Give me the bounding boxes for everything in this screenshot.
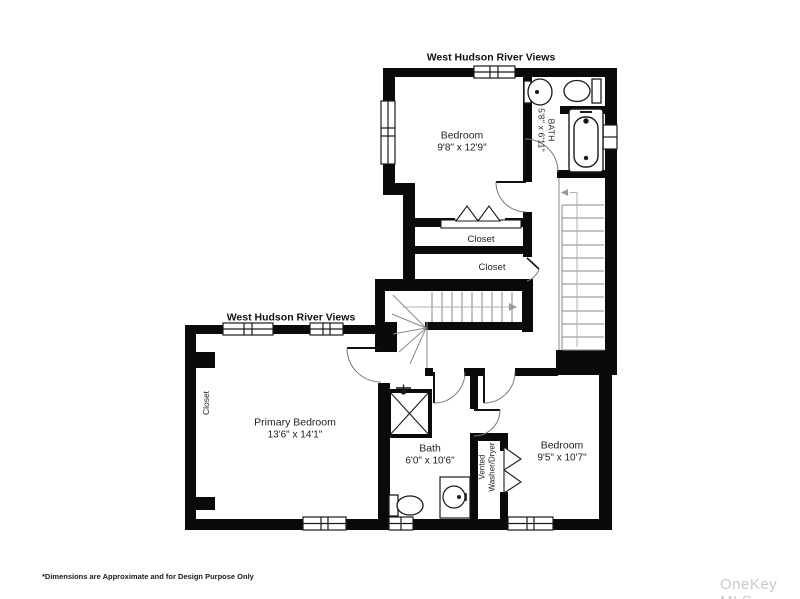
wall-segment bbox=[599, 368, 612, 519]
arrow-head-right bbox=[509, 303, 517, 311]
wall-segment bbox=[500, 492, 508, 519]
room-dimensions: 6'0" x 10'6" bbox=[405, 455, 454, 467]
door-lower-bedroom bbox=[484, 372, 515, 403]
room-label-bedroom-lower: Bedroom 9'5" x 10'7" bbox=[537, 440, 586, 465]
bathtub bbox=[569, 109, 603, 172]
bifold-closet-doors bbox=[441, 206, 521, 228]
room-label-laundry: Vented Washer/Dryer bbox=[477, 442, 497, 491]
room-dimensions: 9'8" x 12'9" bbox=[437, 142, 486, 154]
room-label-primary-closet: Closet bbox=[201, 391, 211, 415]
room-name: Bedroom bbox=[437, 130, 486, 143]
door-closet-2 bbox=[527, 258, 539, 281]
staircase-upper-run bbox=[559, 178, 604, 350]
room-label-closet-1: Closet bbox=[468, 234, 495, 246]
wall-segment bbox=[523, 212, 532, 257]
room-name: BATH bbox=[546, 108, 556, 152]
laundry-line-2: Washer/Dryer bbox=[487, 442, 497, 491]
wall-segment bbox=[196, 352, 215, 368]
vanity-sink bbox=[440, 477, 470, 518]
wall-segment bbox=[522, 279, 533, 332]
window bbox=[303, 517, 346, 530]
wall-segment bbox=[425, 322, 522, 330]
wall-segment bbox=[605, 68, 617, 375]
wall-segment bbox=[378, 333, 390, 345]
sink-top-bath bbox=[524, 79, 552, 105]
toilet-top-bath bbox=[564, 79, 601, 103]
door-top-bedroom bbox=[496, 182, 526, 212]
wall-segment bbox=[470, 433, 508, 441]
room-label-bedroom-top: Bedroom 9'8" x 12'9" bbox=[437, 130, 486, 155]
window bbox=[603, 125, 617, 149]
watermark-onekey-mls: OneKey MLS bbox=[720, 576, 800, 599]
room-dimensions: 9'5" x 10'7" bbox=[537, 452, 586, 464]
window bbox=[474, 66, 515, 78]
window bbox=[223, 323, 273, 335]
wall-segment bbox=[425, 368, 433, 376]
window bbox=[508, 517, 553, 530]
room-label-bath-lower: Bath 6'0" x 10'6" bbox=[405, 443, 454, 468]
laundry-line-1: Vented bbox=[477, 442, 487, 491]
wall-segment bbox=[403, 183, 415, 290]
view-label-left: West Hudson River Views bbox=[227, 312, 356, 325]
room-label-closet-2: Closet bbox=[479, 262, 506, 274]
room-name: Primary Bedroom bbox=[254, 417, 336, 430]
room-name: Bedroom bbox=[537, 440, 586, 453]
wall-segment bbox=[185, 325, 390, 334]
wall-segment bbox=[185, 325, 196, 530]
window bbox=[381, 101, 395, 164]
wall-segment bbox=[464, 368, 478, 376]
toilet-lower-bath bbox=[389, 495, 423, 516]
room-label-primary-bedroom: Primary Bedroom 13'6" x 14'1" bbox=[254, 417, 336, 442]
wall-segment bbox=[375, 279, 533, 291]
room-dimensions: 13'6" x 14'1" bbox=[254, 429, 336, 441]
room-label-bath-top: BATH 5'8" x 6'11" bbox=[536, 108, 557, 152]
shower bbox=[389, 385, 430, 437]
wall-segment bbox=[410, 246, 532, 254]
door-lower-bath bbox=[434, 372, 465, 403]
wall-segment bbox=[185, 519, 395, 530]
room-name: Bath bbox=[405, 443, 454, 456]
bifold-laundry-doors bbox=[504, 447, 521, 493]
door-primary-bedroom bbox=[347, 348, 381, 382]
door-bath-to-bedroom bbox=[474, 410, 500, 436]
wall-segment bbox=[515, 368, 558, 376]
room-dimensions: 5'8" x 6'11" bbox=[536, 108, 546, 152]
disclaimer-text: *Dimensions are Approximate and for Desi… bbox=[42, 572, 254, 581]
arrow-head-up bbox=[561, 189, 568, 196]
window bbox=[310, 323, 343, 335]
floor-plan-drawing bbox=[0, 0, 800, 599]
wall-segment bbox=[470, 375, 478, 409]
floor-plan: West Hudson River Views West Hudson Rive… bbox=[0, 0, 800, 599]
view-label-top: West Hudson River Views bbox=[427, 52, 556, 65]
wall-segment bbox=[196, 497, 215, 510]
window bbox=[389, 517, 413, 530]
